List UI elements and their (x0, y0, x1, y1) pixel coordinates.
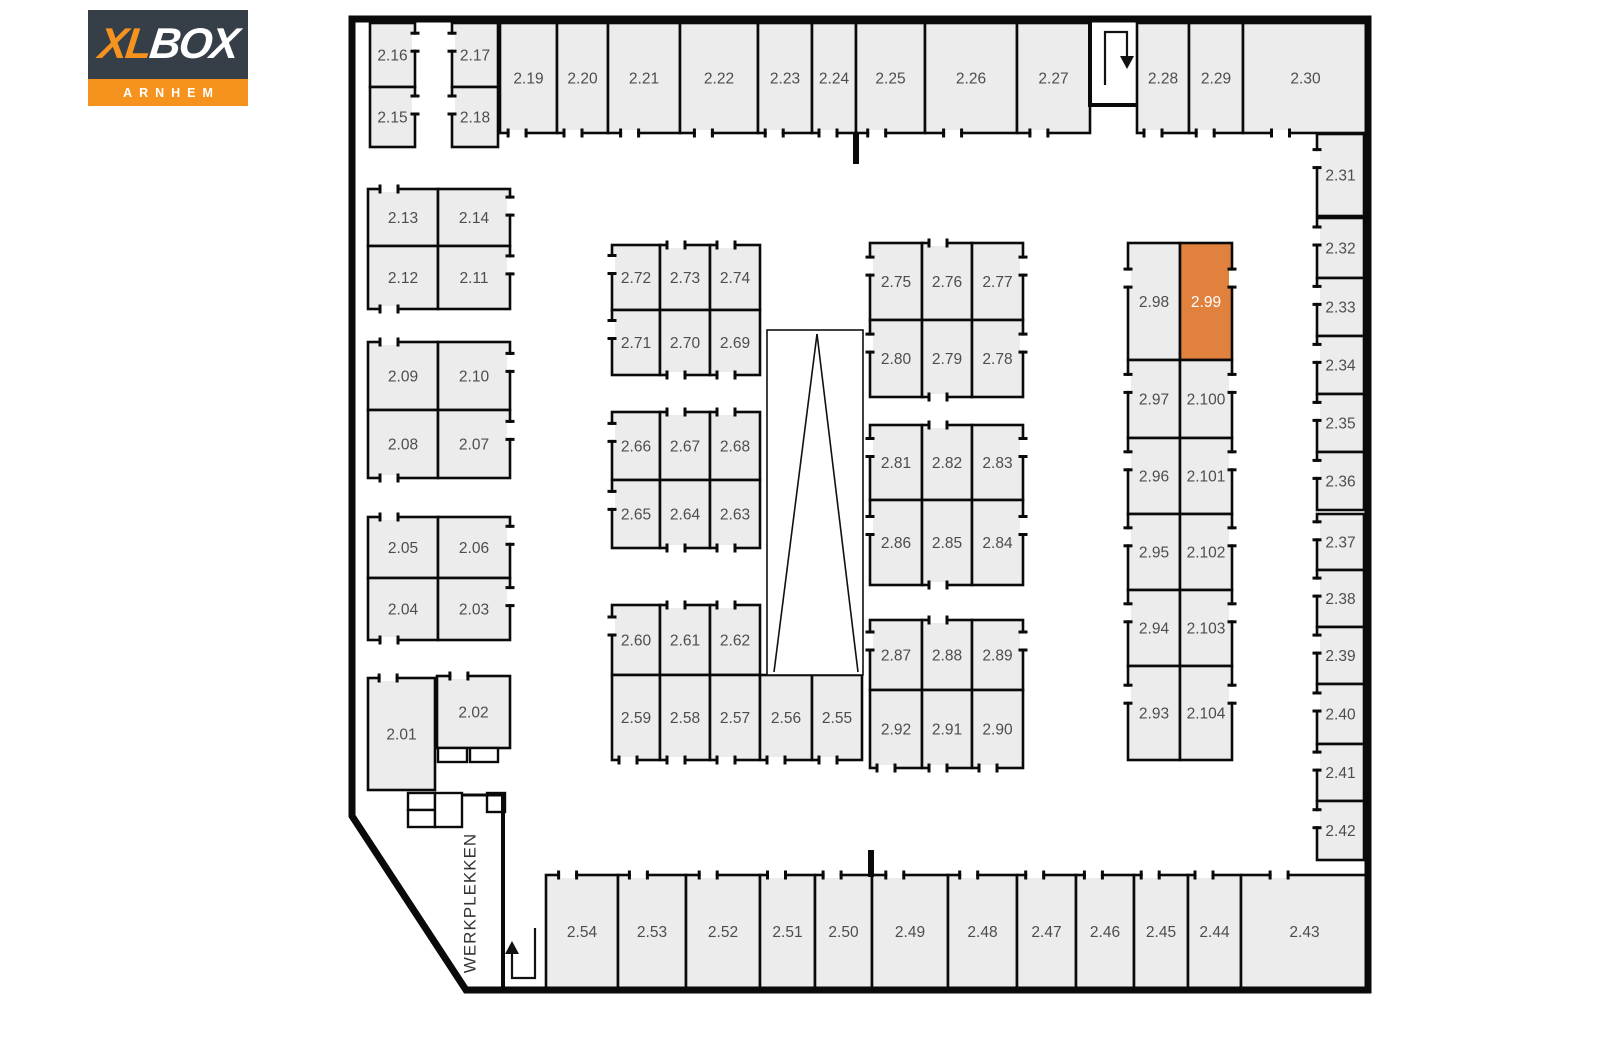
unit-2.94[interactable]: 2.94 (1124, 590, 1181, 666)
unit-2.76[interactable]: 2.76 (922, 239, 972, 321)
unit-label-2.86: 2.86 (881, 535, 911, 552)
unit-2.101[interactable]: 2.101 (1180, 438, 1237, 514)
unit-2.08[interactable]: 2.08 (368, 410, 438, 483)
unit-label-2.70: 2.70 (670, 335, 701, 352)
service-room (408, 793, 435, 810)
unit-label-2.76: 2.76 (932, 274, 962, 291)
unit-label-2.68: 2.68 (720, 439, 750, 456)
unit-2.12[interactable]: 2.12 (368, 246, 438, 314)
unit-2.31[interactable]: 2.31 (1313, 134, 1365, 216)
unit-label-2.67: 2.67 (670, 439, 700, 456)
logo-xl-text: XL (96, 20, 153, 68)
logo-wordmark: XLBOX (96, 23, 239, 66)
service-room (470, 748, 498, 762)
unit-2.53[interactable]: 2.53 (618, 871, 686, 989)
unit-2.78[interactable]: 2.78 (972, 320, 1028, 397)
unit-2.15[interactable]: 2.15 (370, 87, 420, 147)
unit-2.86[interactable]: 2.86 (866, 500, 923, 585)
unit-2.83[interactable]: 2.83 (972, 425, 1028, 500)
unit-2.92[interactable]: 2.92 (870, 690, 922, 773)
unit-2.90[interactable]: 2.90 (972, 690, 1023, 773)
unit-2.51[interactable]: 2.51 (760, 871, 815, 989)
unit-label-2.94: 2.94 (1139, 621, 1170, 638)
unit-2.26[interactable]: 2.26 (925, 23, 1017, 138)
unit-2.97[interactable]: 2.97 (1124, 360, 1181, 438)
unit-label-2.42: 2.42 (1325, 823, 1355, 840)
unit-2.84[interactable]: 2.84 (972, 500, 1028, 585)
unit-2.21[interactable]: 2.21 (608, 23, 680, 138)
unit-label-2.28: 2.28 (1148, 71, 1178, 88)
unit-label-2.08: 2.08 (388, 437, 418, 454)
unit-label-2.89: 2.89 (982, 648, 1012, 665)
unit-2.47[interactable]: 2.47 (1017, 871, 1076, 989)
unit-label-2.50: 2.50 (828, 924, 859, 941)
unit-2.91[interactable]: 2.91 (922, 690, 972, 773)
unit-2.29[interactable]: 2.29 (1189, 23, 1243, 138)
logo-city-banner: ARNHEM (88, 79, 248, 106)
floorplan-page: 2.162.152.172.182.192.202.212.222.232.24… (0, 0, 1600, 1040)
unit-label-2.98: 2.98 (1139, 294, 1169, 311)
xlbox-logo: XLBOX ARNHEM (88, 10, 248, 106)
unit-label-2.103: 2.103 (1187, 621, 1226, 638)
floorplan-svg: 2.162.152.172.182.192.202.212.222.232.24… (0, 0, 1600, 1040)
unit-label-2.96: 2.96 (1139, 469, 1169, 486)
unit-label-2.30: 2.30 (1290, 71, 1321, 88)
unit-label-2.81: 2.81 (881, 455, 911, 472)
unit-label-2.82: 2.82 (932, 455, 962, 472)
unit-2.85[interactable]: 2.85 (922, 500, 972, 590)
unit-label-2.90: 2.90 (982, 722, 1013, 739)
unit-label-2.54: 2.54 (567, 924, 598, 941)
unit-2.05[interactable]: 2.05 (368, 513, 438, 579)
unit-label-2.19: 2.19 (513, 71, 543, 88)
unit-label-2.29: 2.29 (1201, 71, 1231, 88)
unit-label-2.63: 2.63 (720, 507, 750, 524)
unit-2.63[interactable]: 2.63 (710, 480, 760, 553)
unit-2.69[interactable]: 2.69 (710, 310, 760, 380)
unit-label-2.10: 2.10 (459, 369, 490, 386)
unit-2.64[interactable]: 2.64 (660, 480, 710, 553)
unit-2.01[interactable]: 2.01 (368, 674, 435, 791)
unit-label-2.01: 2.01 (386, 727, 416, 744)
entrance-arrow-up-icon (505, 928, 535, 978)
unit-2.59[interactable]: 2.59 (612, 675, 660, 765)
unit-label-2.20: 2.20 (567, 71, 598, 88)
unit-label-2.87: 2.87 (881, 648, 911, 665)
unit-2.34[interactable]: 2.34 (1313, 336, 1365, 394)
werkplekken-label: WERKPLEKKEN (461, 833, 480, 973)
unit-label-2.21: 2.21 (629, 71, 659, 88)
unit-2.48[interactable]: 2.48 (948, 871, 1017, 989)
unit-label-2.93: 2.93 (1139, 706, 1169, 723)
unit-2.17[interactable]: 2.17 (448, 23, 499, 87)
unit-label-2.33: 2.33 (1325, 300, 1355, 317)
unit-label-2.58: 2.58 (670, 710, 700, 727)
unit-label-2.88: 2.88 (932, 648, 962, 665)
unit-2.30[interactable]: 2.30 (1243, 23, 1368, 138)
unit-2.103[interactable]: 2.103 (1180, 590, 1237, 666)
unit-label-2.38: 2.38 (1325, 591, 1355, 608)
unit-label-2.65: 2.65 (621, 507, 651, 524)
unit-label-2.09: 2.09 (388, 369, 418, 386)
unit-label-2.26: 2.26 (956, 71, 986, 88)
unit-2.20[interactable]: 2.20 (557, 23, 608, 138)
unit-2.11[interactable]: 2.11 (438, 246, 515, 309)
unit-label-2.66: 2.66 (621, 439, 651, 456)
unit-2.57[interactable]: 2.57 (710, 675, 760, 765)
unit-2.07[interactable]: 2.07 (438, 410, 515, 478)
unit-2.102[interactable]: 2.102 (1180, 514, 1237, 590)
unit-label-2.91: 2.91 (932, 722, 962, 739)
logo-box-text: BOX (147, 20, 240, 68)
unit-label-2.22: 2.22 (704, 71, 734, 88)
service-room (435, 793, 462, 827)
unit-label-2.62: 2.62 (720, 633, 750, 650)
unit-label-2.39: 2.39 (1325, 648, 1355, 665)
unit-label-2.04: 2.04 (388, 602, 419, 619)
unit-2.32[interactable]: 2.32 (1313, 218, 1365, 278)
unit-label-2.36: 2.36 (1325, 474, 1355, 491)
unit-label-2.14: 2.14 (459, 210, 490, 227)
unit-label-2.92: 2.92 (881, 722, 911, 739)
unit-label-2.13: 2.13 (388, 210, 418, 227)
unit-label-2.43: 2.43 (1289, 924, 1319, 941)
unit-2.66[interactable]: 2.66 (608, 412, 661, 480)
unit-label-2.40: 2.40 (1325, 707, 1356, 724)
unit-label-2.57: 2.57 (720, 710, 750, 727)
unit-2.46[interactable]: 2.46 (1076, 871, 1134, 989)
unit-label-2.27: 2.27 (1038, 71, 1068, 88)
unit-2.96[interactable]: 2.96 (1124, 438, 1181, 514)
unit-2.23[interactable]: 2.23 (758, 23, 812, 138)
unit-2.36[interactable]: 2.36 (1313, 452, 1365, 510)
unit-label-2.97: 2.97 (1139, 392, 1169, 409)
unit-2.42[interactable]: 2.42 (1313, 801, 1365, 860)
unit-label-2.73: 2.73 (670, 270, 700, 287)
unit-label-2.17: 2.17 (460, 48, 490, 65)
unit-label-2.02: 2.02 (458, 705, 488, 722)
unit-label-2.85: 2.85 (932, 535, 962, 552)
unit-label-2.35: 2.35 (1325, 416, 1355, 433)
logo-top-panel: XLBOX (88, 10, 248, 79)
unit-2.93[interactable]: 2.93 (1124, 666, 1181, 760)
unit-2.77[interactable]: 2.77 (972, 243, 1028, 320)
unit-label-2.47: 2.47 (1031, 924, 1061, 941)
unit-label-2.56: 2.56 (771, 710, 801, 727)
unit-label-2.69: 2.69 (720, 335, 750, 352)
unit-label-2.61: 2.61 (670, 633, 700, 650)
unit-label-2.48: 2.48 (967, 924, 997, 941)
unit-2.75[interactable]: 2.75 (866, 243, 923, 320)
unit-2.88[interactable]: 2.88 (922, 616, 972, 691)
unit-2.35[interactable]: 2.35 (1313, 394, 1365, 452)
unit-label-2.84: 2.84 (982, 535, 1013, 552)
unit-label-2.25: 2.25 (875, 71, 905, 88)
service-room (408, 810, 435, 827)
unit-label-2.102: 2.102 (1187, 545, 1226, 562)
unit-label-2.100: 2.100 (1187, 392, 1226, 409)
unit-label-2.55: 2.55 (822, 710, 852, 727)
unit-label-2.37: 2.37 (1325, 535, 1355, 552)
unit-2.50[interactable]: 2.50 (815, 871, 872, 989)
unit-2.104[interactable]: 2.104 (1180, 666, 1237, 760)
unit-2.56[interactable]: 2.56 (760, 675, 812, 765)
unit-label-2.34: 2.34 (1325, 358, 1356, 375)
unit-2.03[interactable]: 2.03 (438, 578, 515, 640)
unit-2.100[interactable]: 2.100 (1180, 360, 1237, 438)
unit-2.65[interactable]: 2.65 (608, 480, 661, 548)
unit-label-2.44: 2.44 (1199, 924, 1230, 941)
unit-label-2.72: 2.72 (621, 270, 651, 287)
unit-2.25[interactable]: 2.25 (856, 23, 925, 138)
unit-2.28[interactable]: 2.28 (1137, 23, 1189, 138)
unit-label-2.104: 2.104 (1187, 706, 1226, 723)
unit-label-2.05: 2.05 (388, 540, 418, 557)
unit-label-2.23: 2.23 (770, 71, 800, 88)
unit-label-2.101: 2.101 (1187, 469, 1226, 486)
unit-label-2.18: 2.18 (460, 110, 490, 127)
unit-2.24[interactable]: 2.24 (812, 23, 856, 138)
unit-2.27[interactable]: 2.27 (1017, 23, 1090, 138)
unit-label-2.59: 2.59 (621, 710, 651, 727)
unit-2.99[interactable]: 2.99 (1180, 243, 1237, 360)
unit-2.68[interactable]: 2.68 (710, 408, 760, 481)
unit-2.43[interactable]: 2.43 (1241, 871, 1368, 989)
unit-label-2.74: 2.74 (720, 270, 751, 287)
unit-2.16[interactable]: 2.16 (370, 23, 420, 87)
unit-label-2.75: 2.75 (881, 274, 911, 291)
unit-2.22[interactable]: 2.22 (680, 23, 758, 138)
unit-2.61[interactable]: 2.61 (660, 601, 710, 676)
unit-2.81[interactable]: 2.81 (866, 425, 923, 500)
unit-label-2.77: 2.77 (982, 274, 1012, 291)
unit-2.06[interactable]: 2.06 (438, 517, 515, 578)
service-room (438, 748, 467, 762)
unit-2.70[interactable]: 2.70 (660, 310, 710, 380)
unit-2.04[interactable]: 2.04 (368, 578, 438, 645)
unit-2.58[interactable]: 2.58 (660, 675, 710, 765)
unit-label-2.41: 2.41 (1325, 765, 1355, 782)
unit-2.09[interactable]: 2.09 (368, 338, 438, 411)
unit-2.10[interactable]: 2.10 (438, 342, 515, 410)
unit-label-2.32: 2.32 (1325, 241, 1355, 258)
unit-label-2.03: 2.03 (459, 602, 489, 619)
unit-label-2.95: 2.95 (1139, 545, 1169, 562)
entrance-arrow-down-icon (1105, 32, 1134, 85)
unit-2.60[interactable]: 2.60 (608, 605, 661, 675)
unit-label-2.80: 2.80 (881, 351, 912, 368)
unit-2.71[interactable]: 2.71 (608, 310, 661, 375)
unit-label-2.16: 2.16 (377, 48, 407, 65)
unit-2.74[interactable]: 2.74 (710, 241, 760, 311)
unit-label-2.64: 2.64 (670, 507, 701, 524)
unit-2.13[interactable]: 2.13 (368, 185, 438, 247)
unit-2.73[interactable]: 2.73 (660, 241, 710, 311)
unit-2.95[interactable]: 2.95 (1124, 514, 1181, 590)
unit-2.14[interactable]: 2.14 (438, 189, 515, 246)
unit-2.52[interactable]: 2.52 (686, 871, 760, 989)
unit-label-2.49: 2.49 (895, 924, 925, 941)
unit-label-2.51: 2.51 (772, 924, 802, 941)
unit-2.62[interactable]: 2.62 (710, 601, 760, 676)
unit-2.98[interactable]: 2.98 (1124, 243, 1181, 360)
unit-label-2.46: 2.46 (1090, 924, 1120, 941)
unit-label-2.12: 2.12 (388, 270, 418, 287)
unit-label-2.24: 2.24 (819, 71, 850, 88)
unit-2.89[interactable]: 2.89 (972, 620, 1028, 690)
unit-2.02[interactable]: 2.02 (437, 672, 510, 749)
unit-2.79[interactable]: 2.79 (922, 320, 972, 402)
unit-2.19[interactable]: 2.19 (500, 23, 557, 138)
unit-2.82[interactable]: 2.82 (922, 421, 972, 501)
ramp (767, 330, 863, 675)
unit-2.87[interactable]: 2.87 (866, 620, 923, 690)
unit-label-2.07: 2.07 (459, 437, 489, 454)
unit-label-2.53: 2.53 (637, 924, 667, 941)
unit-2.45[interactable]: 2.45 (1134, 871, 1188, 989)
unit-2.72[interactable]: 2.72 (608, 245, 661, 310)
unit-2.40[interactable]: 2.40 (1313, 684, 1365, 744)
unit-2.38[interactable]: 2.38 (1313, 570, 1365, 627)
unit-2.37[interactable]: 2.37 (1313, 514, 1365, 570)
unit-2.33[interactable]: 2.33 (1313, 278, 1365, 336)
unit-label-2.60: 2.60 (621, 633, 652, 650)
unit-2.55[interactable]: 2.55 (812, 675, 862, 765)
unit-label-2.71: 2.71 (621, 335, 651, 352)
unit-2.18[interactable]: 2.18 (448, 87, 499, 147)
unit-2.41[interactable]: 2.41 (1313, 744, 1365, 801)
unit-label-2.11: 2.11 (459, 270, 488, 287)
unit-2.80[interactable]: 2.80 (866, 320, 923, 397)
unit-label-2.78: 2.78 (982, 351, 1012, 368)
unit-label-2.79: 2.79 (932, 351, 962, 368)
unit-label-2.45: 2.45 (1146, 924, 1176, 941)
unit-label-2.06: 2.06 (459, 540, 489, 557)
unit-2.44[interactable]: 2.44 (1188, 871, 1241, 989)
unit-label-2.31: 2.31 (1325, 168, 1355, 185)
unit-2.67[interactable]: 2.67 (660, 408, 710, 481)
unit-2.49[interactable]: 2.49 (872, 871, 948, 989)
unit-2.39[interactable]: 2.39 (1313, 627, 1365, 684)
unit-label-2.99: 2.99 (1191, 294, 1221, 311)
unit-label-2.83: 2.83 (982, 455, 1012, 472)
unit-label-2.15: 2.15 (377, 110, 407, 127)
unit-2.54[interactable]: 2.54 (546, 871, 618, 989)
unit-label-2.52: 2.52 (708, 924, 738, 941)
